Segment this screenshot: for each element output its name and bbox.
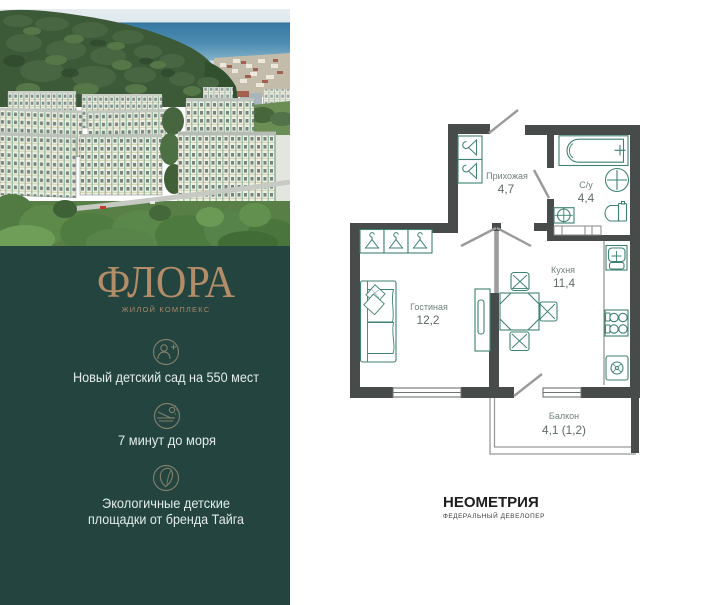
svg-text:7 минут до моря: 7 минут до моря (118, 432, 216, 448)
svg-text:Балкон: Балкон (549, 411, 579, 421)
svg-text:4,1 (1,2): 4,1 (1,2) (542, 423, 586, 437)
svg-text:12,2: 12,2 (417, 313, 440, 327)
svg-text:Кухня: Кухня (551, 265, 575, 275)
svg-text:площадки от бренда Тайга: площадки от бренда Тайга (88, 511, 244, 527)
svg-text:С/у: С/у (579, 180, 593, 190)
svg-text:Прихожая: Прихожая (486, 171, 528, 181)
svg-text:11,4: 11,4 (553, 276, 576, 290)
svg-text:Гостиная: Гостиная (410, 302, 448, 312)
svg-text:4,4: 4,4 (578, 191, 595, 205)
svg-text:4,7: 4,7 (498, 182, 514, 196)
svg-text:Новый детский сад на 550 мест: Новый детский сад на 550 мест (73, 369, 260, 385)
svg-text:Экологичные детские: Экологичные детские (102, 495, 230, 511)
